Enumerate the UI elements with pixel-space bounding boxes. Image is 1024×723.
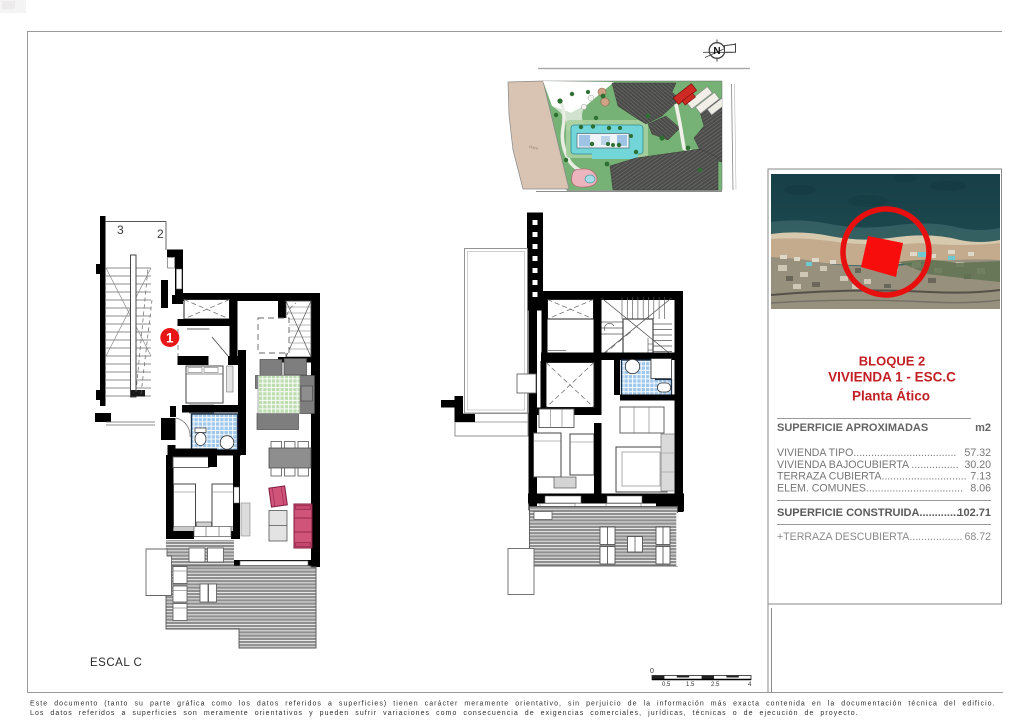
svg-text:ELEM. COMUNES.................: ELEM. COMUNES...........................… [777,482,963,494]
svg-text:3: 3 [117,223,124,237]
svg-text:30.20: 30.20 [964,459,991,471]
svg-text:ESCAL C: ESCAL C [90,657,142,669]
svg-text:SUPERFICIE CONSTRUIDA.........: SUPERFICIE CONSTRUIDA............. [777,507,959,519]
svg-text:57.32: 57.32 [964,447,991,459]
svg-text:BLOQUE 2: BLOQUE 2 [859,354,925,369]
svg-text:Este documento (tanto su parte: Este documento (tanto su parte gráfica c… [30,701,996,708]
svg-text:0.5: 0.5 [662,682,671,688]
svg-text:4: 4 [748,682,752,688]
svg-text:68.72: 68.72 [964,531,991,543]
svg-text:m2: m2 [975,422,991,434]
svg-text:Los datos referidos a superfic: Los datos referidos a superficies son me… [30,710,859,717]
svg-text:0: 0 [650,668,654,675]
svg-text:102.71: 102.71 [957,507,991,519]
svg-text:VIVIENDA TIPO.................: VIVIENDA TIPO...........................… [777,447,956,459]
svg-text:7.13: 7.13 [970,471,991,483]
svg-text:TERRAZA CUBIERTA..............: TERRAZA CUBIERTA........................… [777,471,967,483]
svg-text:SUPERFICIE APROXIMADAS: SUPERFICIE APROXIMADAS [777,422,928,434]
svg-text:8.06: 8.06 [970,482,991,494]
svg-text:VIVIENDA 1 - ESC.C: VIVIENDA 1 - ESC.C [828,370,956,385]
svg-text:1: 1 [166,330,174,345]
svg-text:VIVIENDA BAJOCUBIERTA ........: VIVIENDA BAJOCUBIERTA ................ [777,459,959,471]
svg-text:+TERRAZA DESCUBIERTA..........: +TERRAZA DESCUBIERTA.................. [777,531,962,543]
svg-text:1.5: 1.5 [686,682,695,688]
svg-text:2.5: 2.5 [711,682,720,688]
svg-text:Planta Ático: Planta Ático [852,389,930,404]
svg-text:N: N [713,46,720,57]
svg-text:2: 2 [157,227,164,241]
